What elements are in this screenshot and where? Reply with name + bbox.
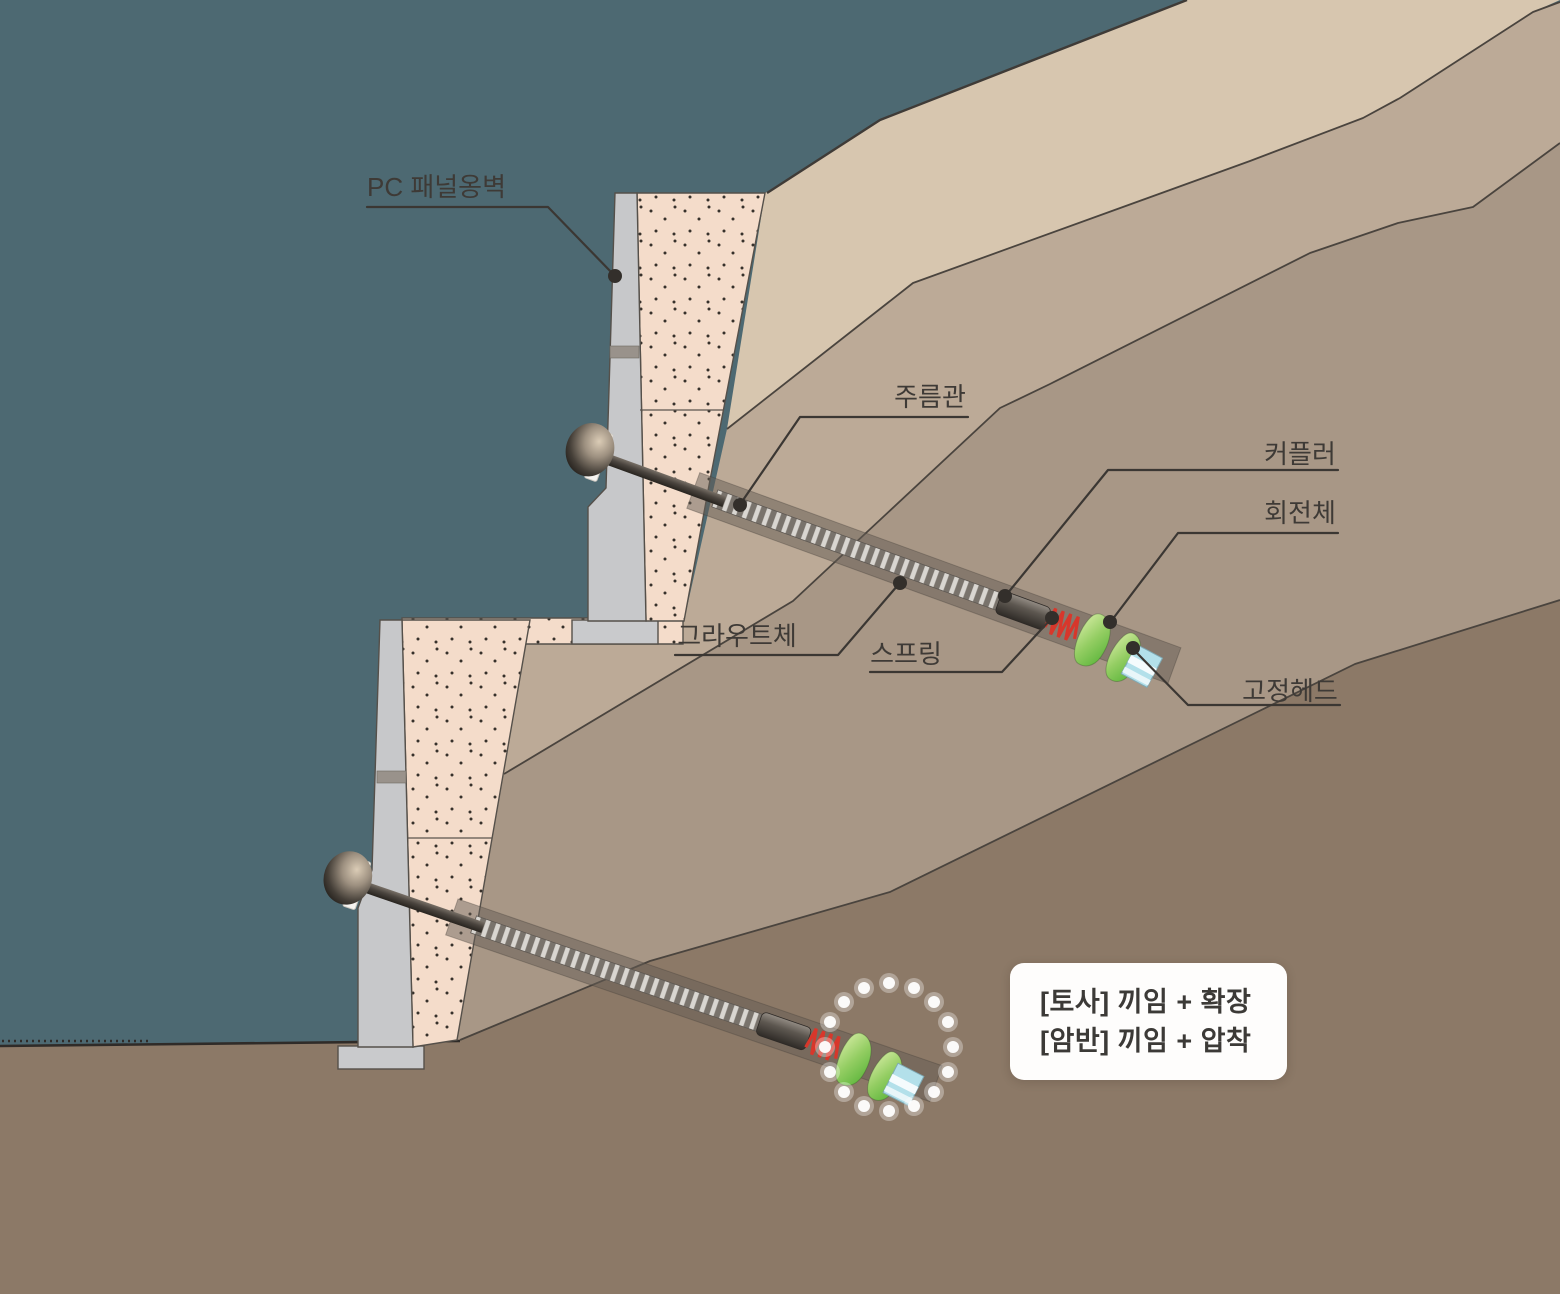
leader-dot-corrugated-pipe (733, 498, 747, 512)
upper-panel-joint (610, 346, 639, 358)
label-corrugated-pipe: 주름관 (894, 382, 966, 412)
leader-dot-coupler (998, 589, 1012, 603)
note-line-soil: [토사] 끼임 + 확장 (1040, 983, 1287, 1022)
label-coupler: 커플러 (1264, 439, 1336, 469)
leader-dot-spring (1045, 611, 1059, 625)
lower-panel-joint (377, 771, 406, 783)
upper-wall-footing (572, 620, 658, 644)
leader-dot-rotating-body (1103, 615, 1117, 629)
label-spring: 스프링 (870, 639, 942, 669)
label-pc-panel-wall: PC 패널옹벽 (367, 172, 506, 202)
label-fixed-head: 고정헤드 (1242, 676, 1338, 706)
note-box: [토사] 끼임 + 확장 [암반] 끼임 + 압착 (1010, 963, 1287, 1080)
leader-dot-wall (608, 269, 622, 283)
anchor-diagram: PC 패널옹벽 주름관 그라우트체 스프링 커플러 회전체 고정헤드 (0, 0, 1560, 1294)
label-grout-body: 그라우트체 (677, 621, 797, 651)
leader-dot-grout-body (893, 576, 907, 590)
lower-wall-footing (338, 1046, 424, 1069)
leader-dot-fixed-head (1126, 641, 1140, 655)
diagram-canvas: PC 패널옹벽 주름관 그라우트체 스프링 커플러 회전체 고정헤드 [토사] … (0, 0, 1560, 1294)
label-rotating-body: 회전체 (1264, 498, 1336, 528)
note-line-rock: [암반] 끼임 + 압착 (1040, 1022, 1287, 1061)
